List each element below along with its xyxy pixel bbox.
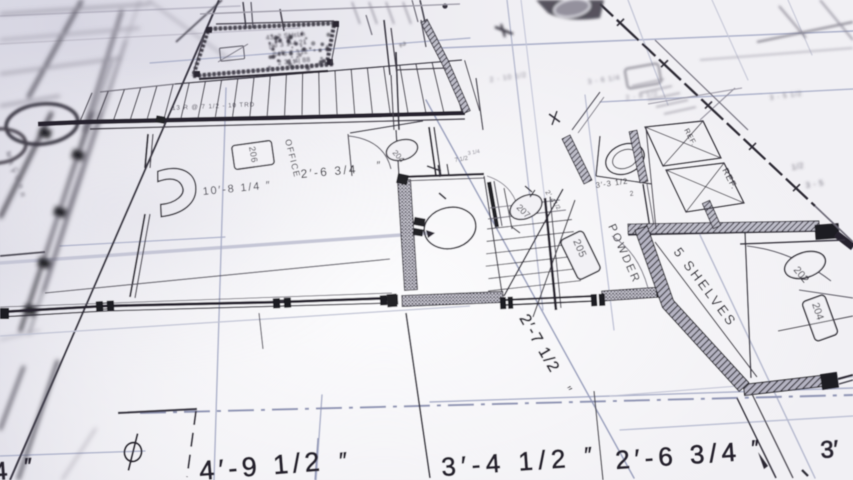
svg-text:3′: 3′ — [820, 436, 840, 464]
